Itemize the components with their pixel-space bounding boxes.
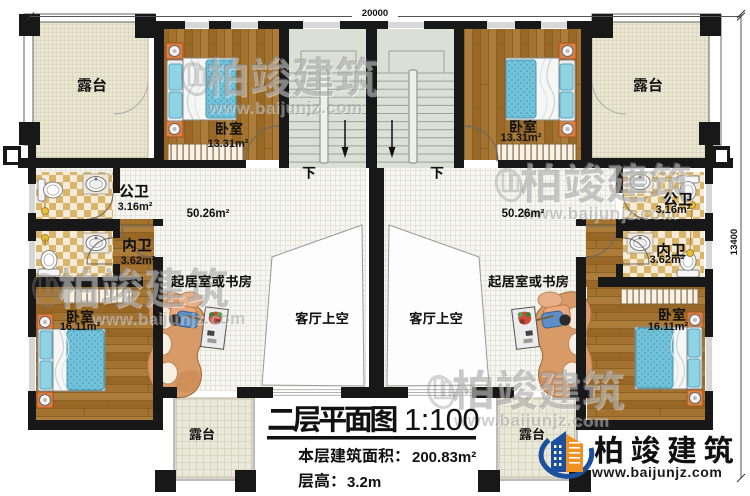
svg-text:3.62m²: 3.62m² bbox=[121, 255, 156, 267]
svg-text:1:100: 1:100 bbox=[404, 402, 479, 437]
svg-text:3.62m²: 3.62m² bbox=[650, 254, 685, 266]
svg-text:13400: 13400 bbox=[729, 229, 740, 255]
svg-text:3.16m²: 3.16m² bbox=[656, 204, 691, 216]
svg-text:16.11m²: 16.11m² bbox=[648, 321, 689, 333]
svg-text:www.baijunjz.com: www.baijunjz.com bbox=[591, 464, 722, 480]
svg-text:www.baijunjz.com: www.baijunjz.com bbox=[90, 309, 246, 328]
svg-text:3.16m²: 3.16m² bbox=[118, 201, 153, 213]
svg-text:50.26m²: 50.26m² bbox=[502, 208, 545, 220]
svg-text:www.baijunjz.com: www.baijunjz.com bbox=[207, 98, 363, 117]
svg-text:50.26m²: 50.26m² bbox=[187, 208, 230, 220]
svg-text:13.31m²: 13.31m² bbox=[501, 132, 542, 144]
svg-text:16.11m²: 16.11m² bbox=[60, 321, 101, 333]
svg-text:20000: 20000 bbox=[362, 8, 388, 19]
svg-text:13.31m²: 13.31m² bbox=[208, 138, 249, 150]
svg-text:200.83m²: 200.83m² bbox=[412, 449, 476, 466]
svg-text:3.2m: 3.2m bbox=[347, 474, 381, 491]
